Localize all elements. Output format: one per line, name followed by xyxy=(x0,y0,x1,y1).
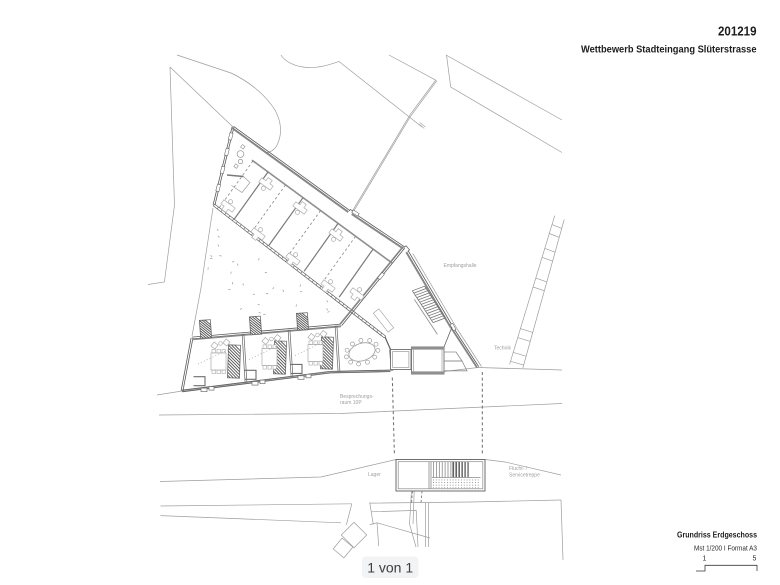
svg-text:Technik: Technik xyxy=(494,346,511,352)
svg-text:201219: 201219 xyxy=(718,24,757,39)
svg-text:Mst 1/200 I Format A3: Mst 1/200 I Format A3 xyxy=(694,546,757,553)
svg-text:Flucht- /: Flucht- / xyxy=(509,466,528,472)
svg-text:raum 10P: raum 10P xyxy=(340,400,362,406)
svg-text:Wettbewerb Stadteingang Slüter: Wettbewerb Stadteingang Slüterstrasse xyxy=(581,45,757,56)
svg-text:1 von 1: 1 von 1 xyxy=(367,559,413,575)
svg-text:1: 1 xyxy=(703,556,707,563)
svg-text:5: 5 xyxy=(753,556,757,563)
svg-text:Lager: Lager xyxy=(368,472,381,478)
svg-text:Empfangshalle: Empfangshalle xyxy=(444,263,477,269)
svg-text:Servicetreppe: Servicetreppe xyxy=(509,473,540,479)
svg-text:Grundriss Erdgeschoss: Grundriss Erdgeschoss xyxy=(677,531,758,540)
